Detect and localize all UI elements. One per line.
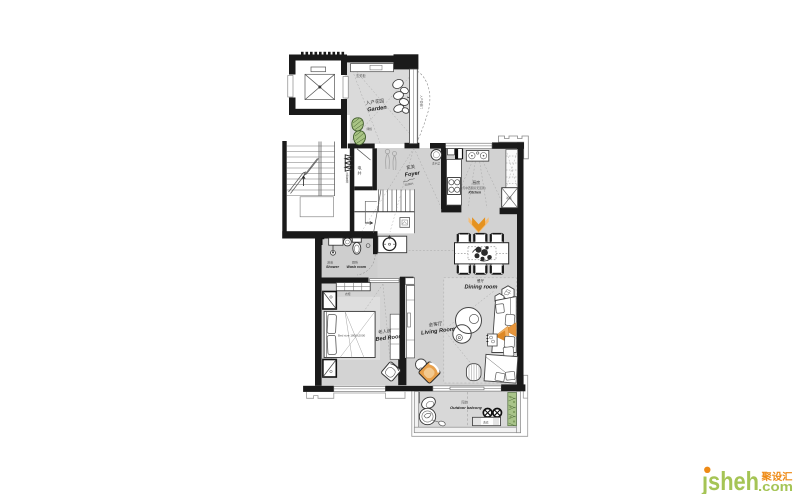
svg-text:Outdoor balcony: Outdoor balcony	[450, 405, 483, 410]
svg-text:Dining room: Dining room	[465, 285, 498, 291]
svg-text:Shower: Shower	[326, 265, 340, 269]
svg-text:入户套装门: 入户套装门	[420, 95, 424, 109]
svg-text:聚设汇: 聚设汇	[760, 471, 793, 483]
svg-text:厨房: 厨房	[473, 180, 481, 185]
svg-text:淋浴: 淋浴	[327, 260, 333, 265]
svg-text:衣柜: 衣柜	[345, 292, 351, 296]
svg-text:(与中西厨房无区别): (与中西厨房无区别)	[462, 186, 486, 190]
svg-text:餐厅: 餐厅	[477, 278, 485, 283]
svg-text:Kitchen: Kitchen	[469, 191, 481, 195]
svg-text:洗衣: 洗衣	[483, 421, 489, 425]
svg-text:厕所: 厕所	[352, 260, 358, 265]
svg-text:洗手盆: 洗手盆	[432, 162, 440, 166]
svg-text:电井: 电井	[357, 165, 363, 177]
svg-text:强弱电箱: 强弱电箱	[345, 172, 348, 184]
svg-text:Wash room: Wash room	[347, 265, 367, 269]
svg-text:冰箱: 冰箱	[506, 196, 512, 200]
svg-text:Bed size 1800x2000: Bed size 1800x2000	[338, 334, 366, 338]
svg-text:玄关柜: 玄关柜	[356, 73, 366, 78]
svg-text:阳台: 阳台	[462, 400, 468, 405]
svg-text:绿植: 绿植	[367, 127, 373, 131]
